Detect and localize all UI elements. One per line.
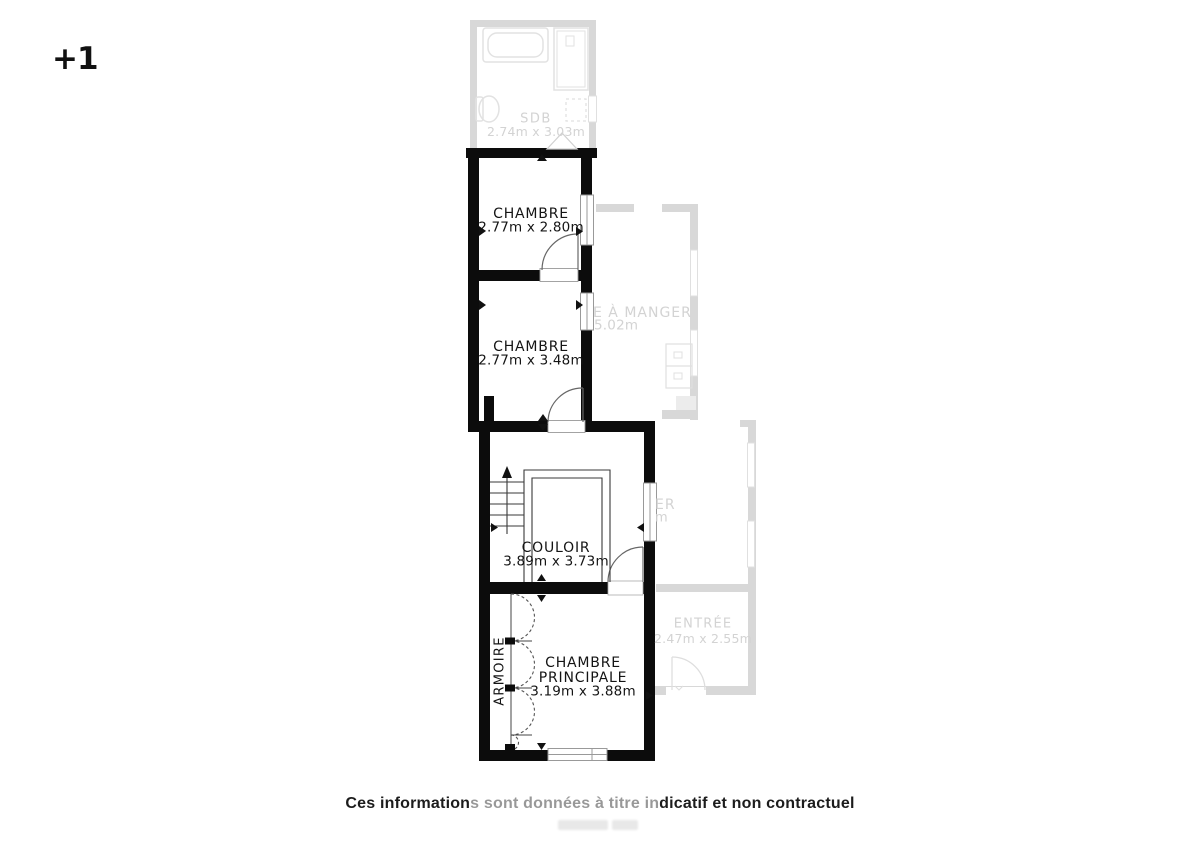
sdb-room-dims: 2.74m x 3.03m xyxy=(487,126,585,139)
disclaimer-text: Ces informations sont données à titre in… xyxy=(345,795,854,813)
couloir-room-dims: 3.89m x 3.73m xyxy=(503,555,609,569)
sdb-dashed-fixture xyxy=(566,99,586,121)
armoire-doors xyxy=(505,594,535,751)
adjacent-room-dims-fragment: m xyxy=(655,512,668,525)
entree-room-label: ENTRÉE xyxy=(674,618,733,631)
floor-plan: +1 SDB 2.74m x 3.03m CHAMBRE 2.77m x 2.8… xyxy=(0,0,1200,849)
dining-cabinet-icon xyxy=(666,344,692,388)
faded-artifact xyxy=(612,820,638,830)
floor-plan-drawing xyxy=(0,0,1200,849)
door-arcs xyxy=(542,234,643,582)
armoire-label: ARMOIRE xyxy=(493,636,508,706)
chambre-principale-dims: 3.19m x 3.88m xyxy=(530,685,636,699)
dining-room-dims-fragment: 5.02m xyxy=(594,319,638,333)
bathtub-icon xyxy=(483,28,548,62)
faded-artifact xyxy=(558,820,608,830)
chambre1-room-dims: 2.77m x 2.80m xyxy=(478,221,584,235)
chambre2-room-dims: 2.77m x 3.48m xyxy=(478,354,584,368)
shower-icon xyxy=(554,28,588,90)
toilet-icon xyxy=(476,96,499,122)
entree-room-dims: 2.47m x 2.55m xyxy=(654,633,752,646)
chambre-principale-label-line1: CHAMBRE xyxy=(545,656,621,670)
floor-level-label: +1 xyxy=(52,44,98,75)
entree-door-arc xyxy=(672,657,705,690)
